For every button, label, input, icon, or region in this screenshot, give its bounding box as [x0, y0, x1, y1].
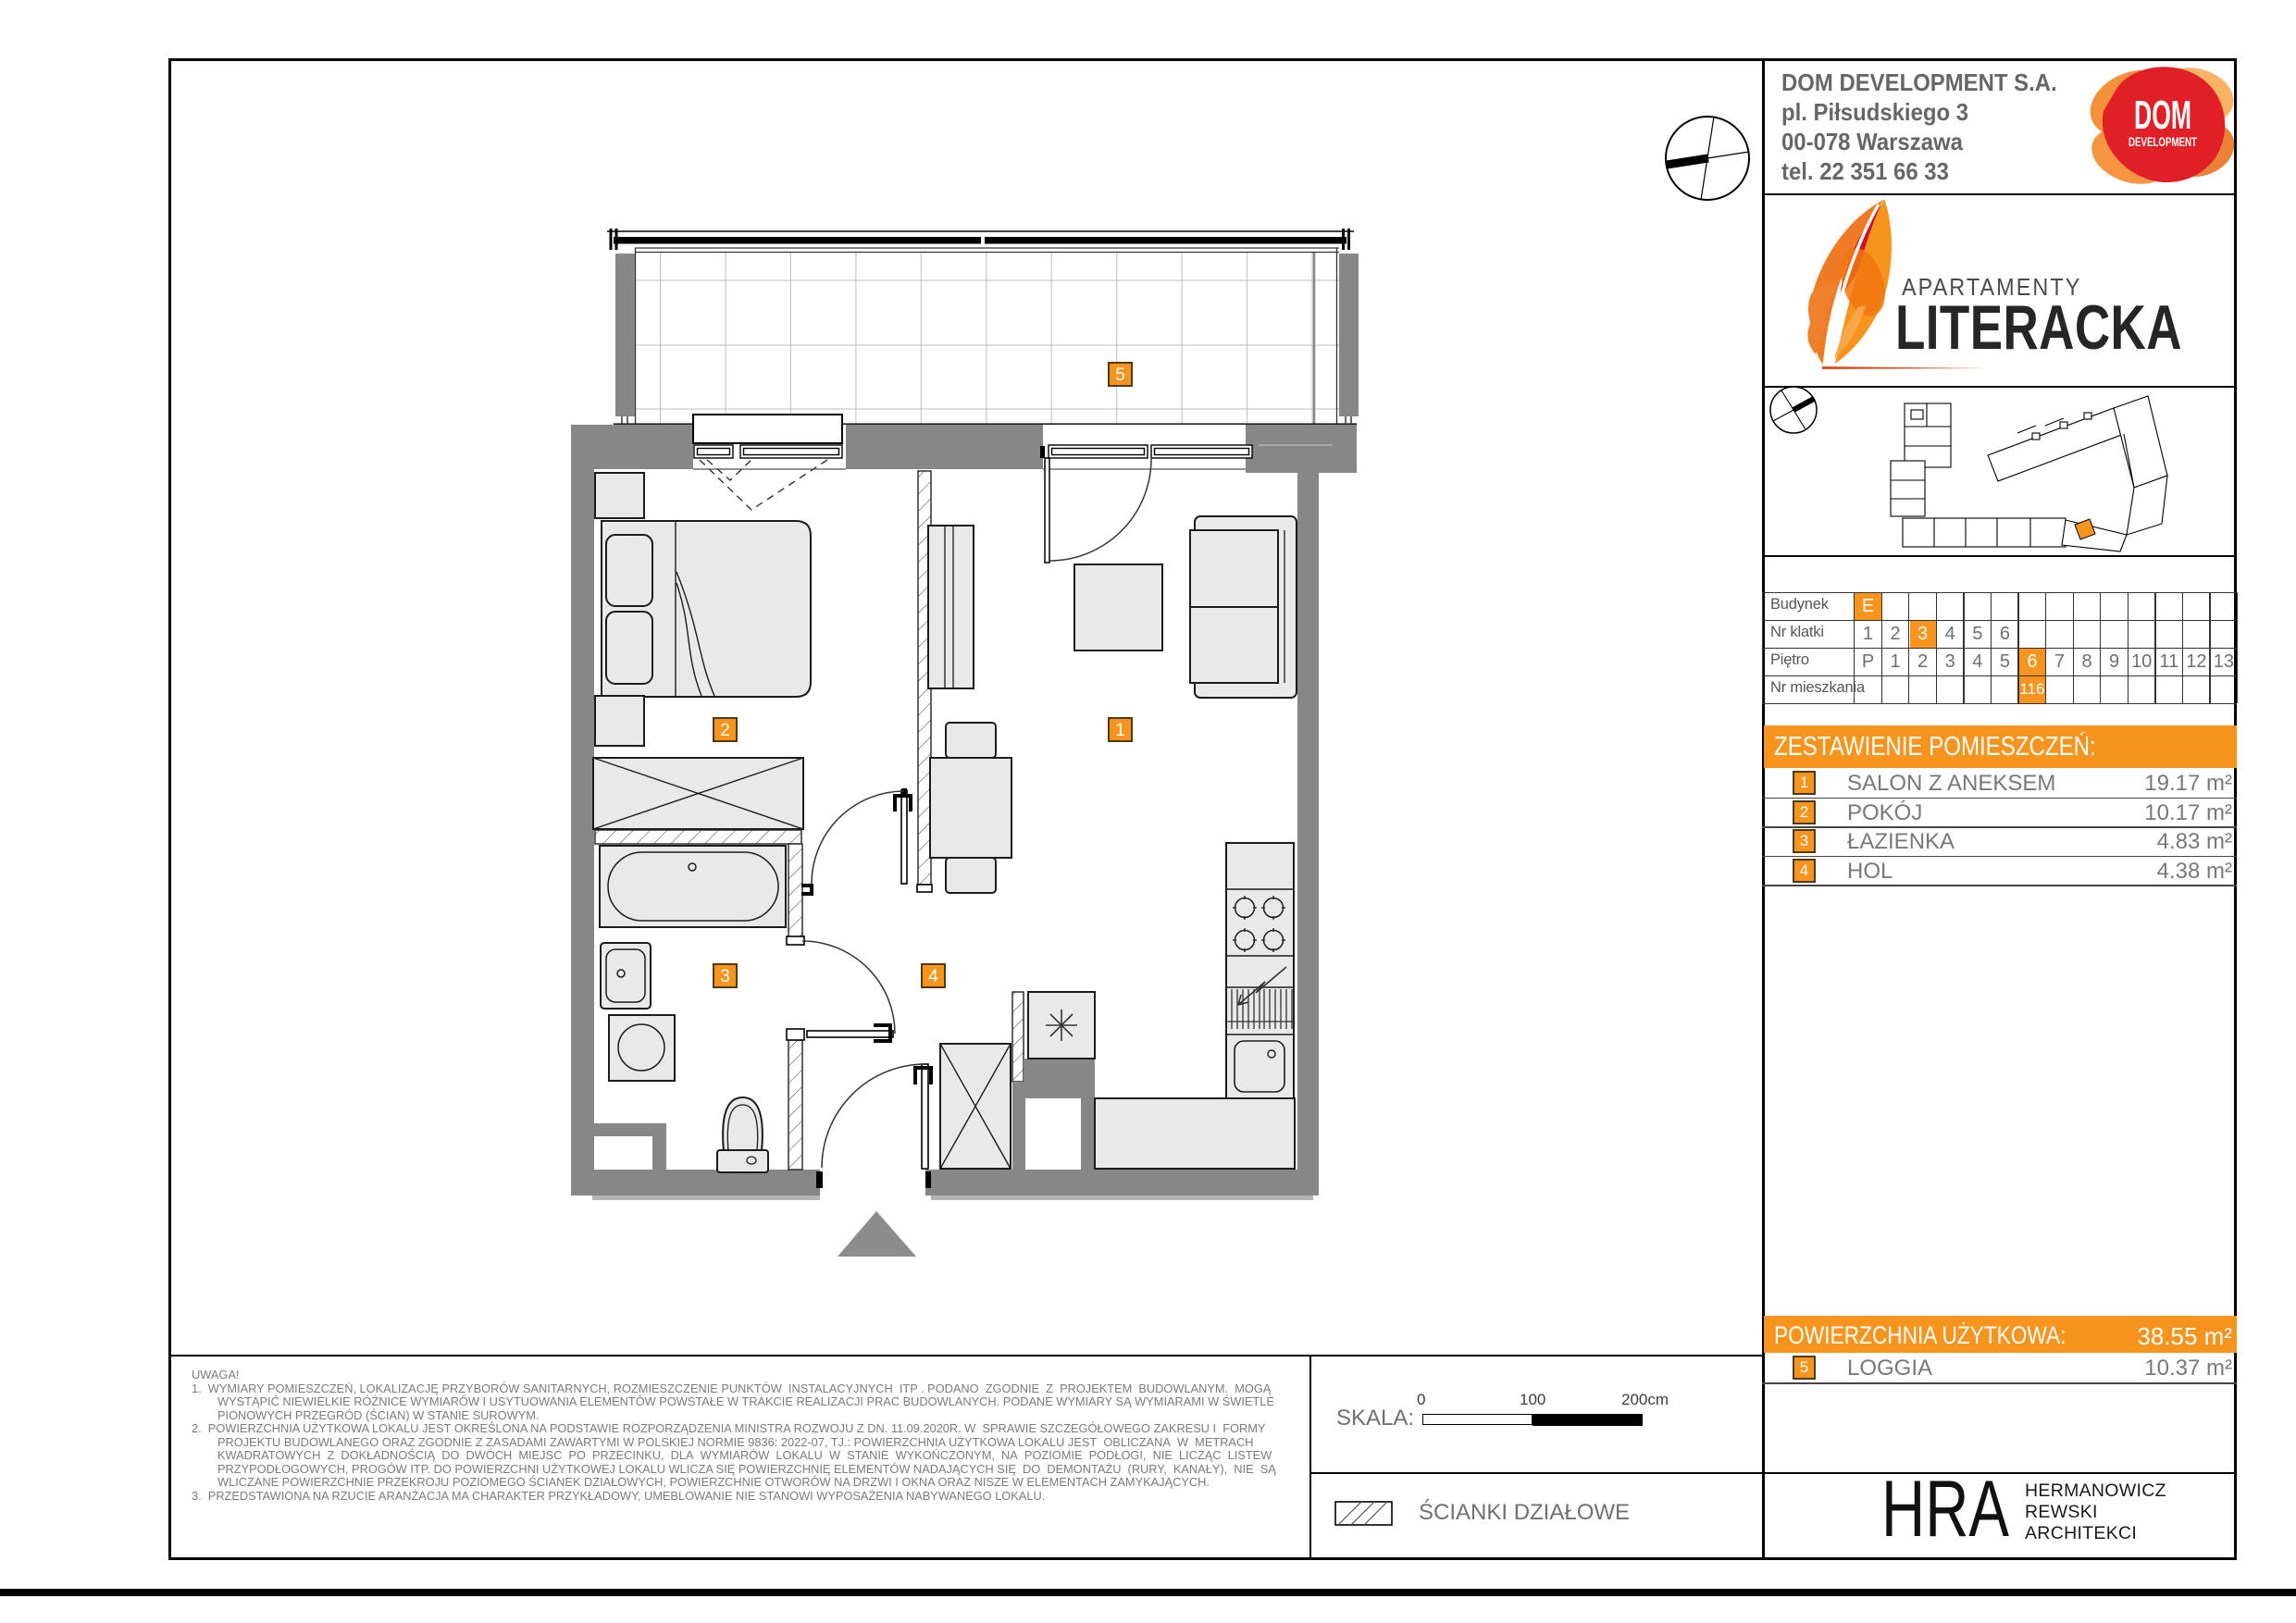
svg-text:4: 4 — [928, 967, 938, 986]
svg-text:3: 3 — [720, 967, 730, 986]
svg-text:DOM: DOM — [2134, 93, 2191, 138]
svg-text:DEVELOPMENT: DEVELOPMENT — [2128, 135, 2198, 149]
svg-text:2: 2 — [720, 721, 730, 740]
svg-text:1: 1 — [1115, 721, 1125, 740]
svg-text:5: 5 — [1115, 365, 1125, 385]
